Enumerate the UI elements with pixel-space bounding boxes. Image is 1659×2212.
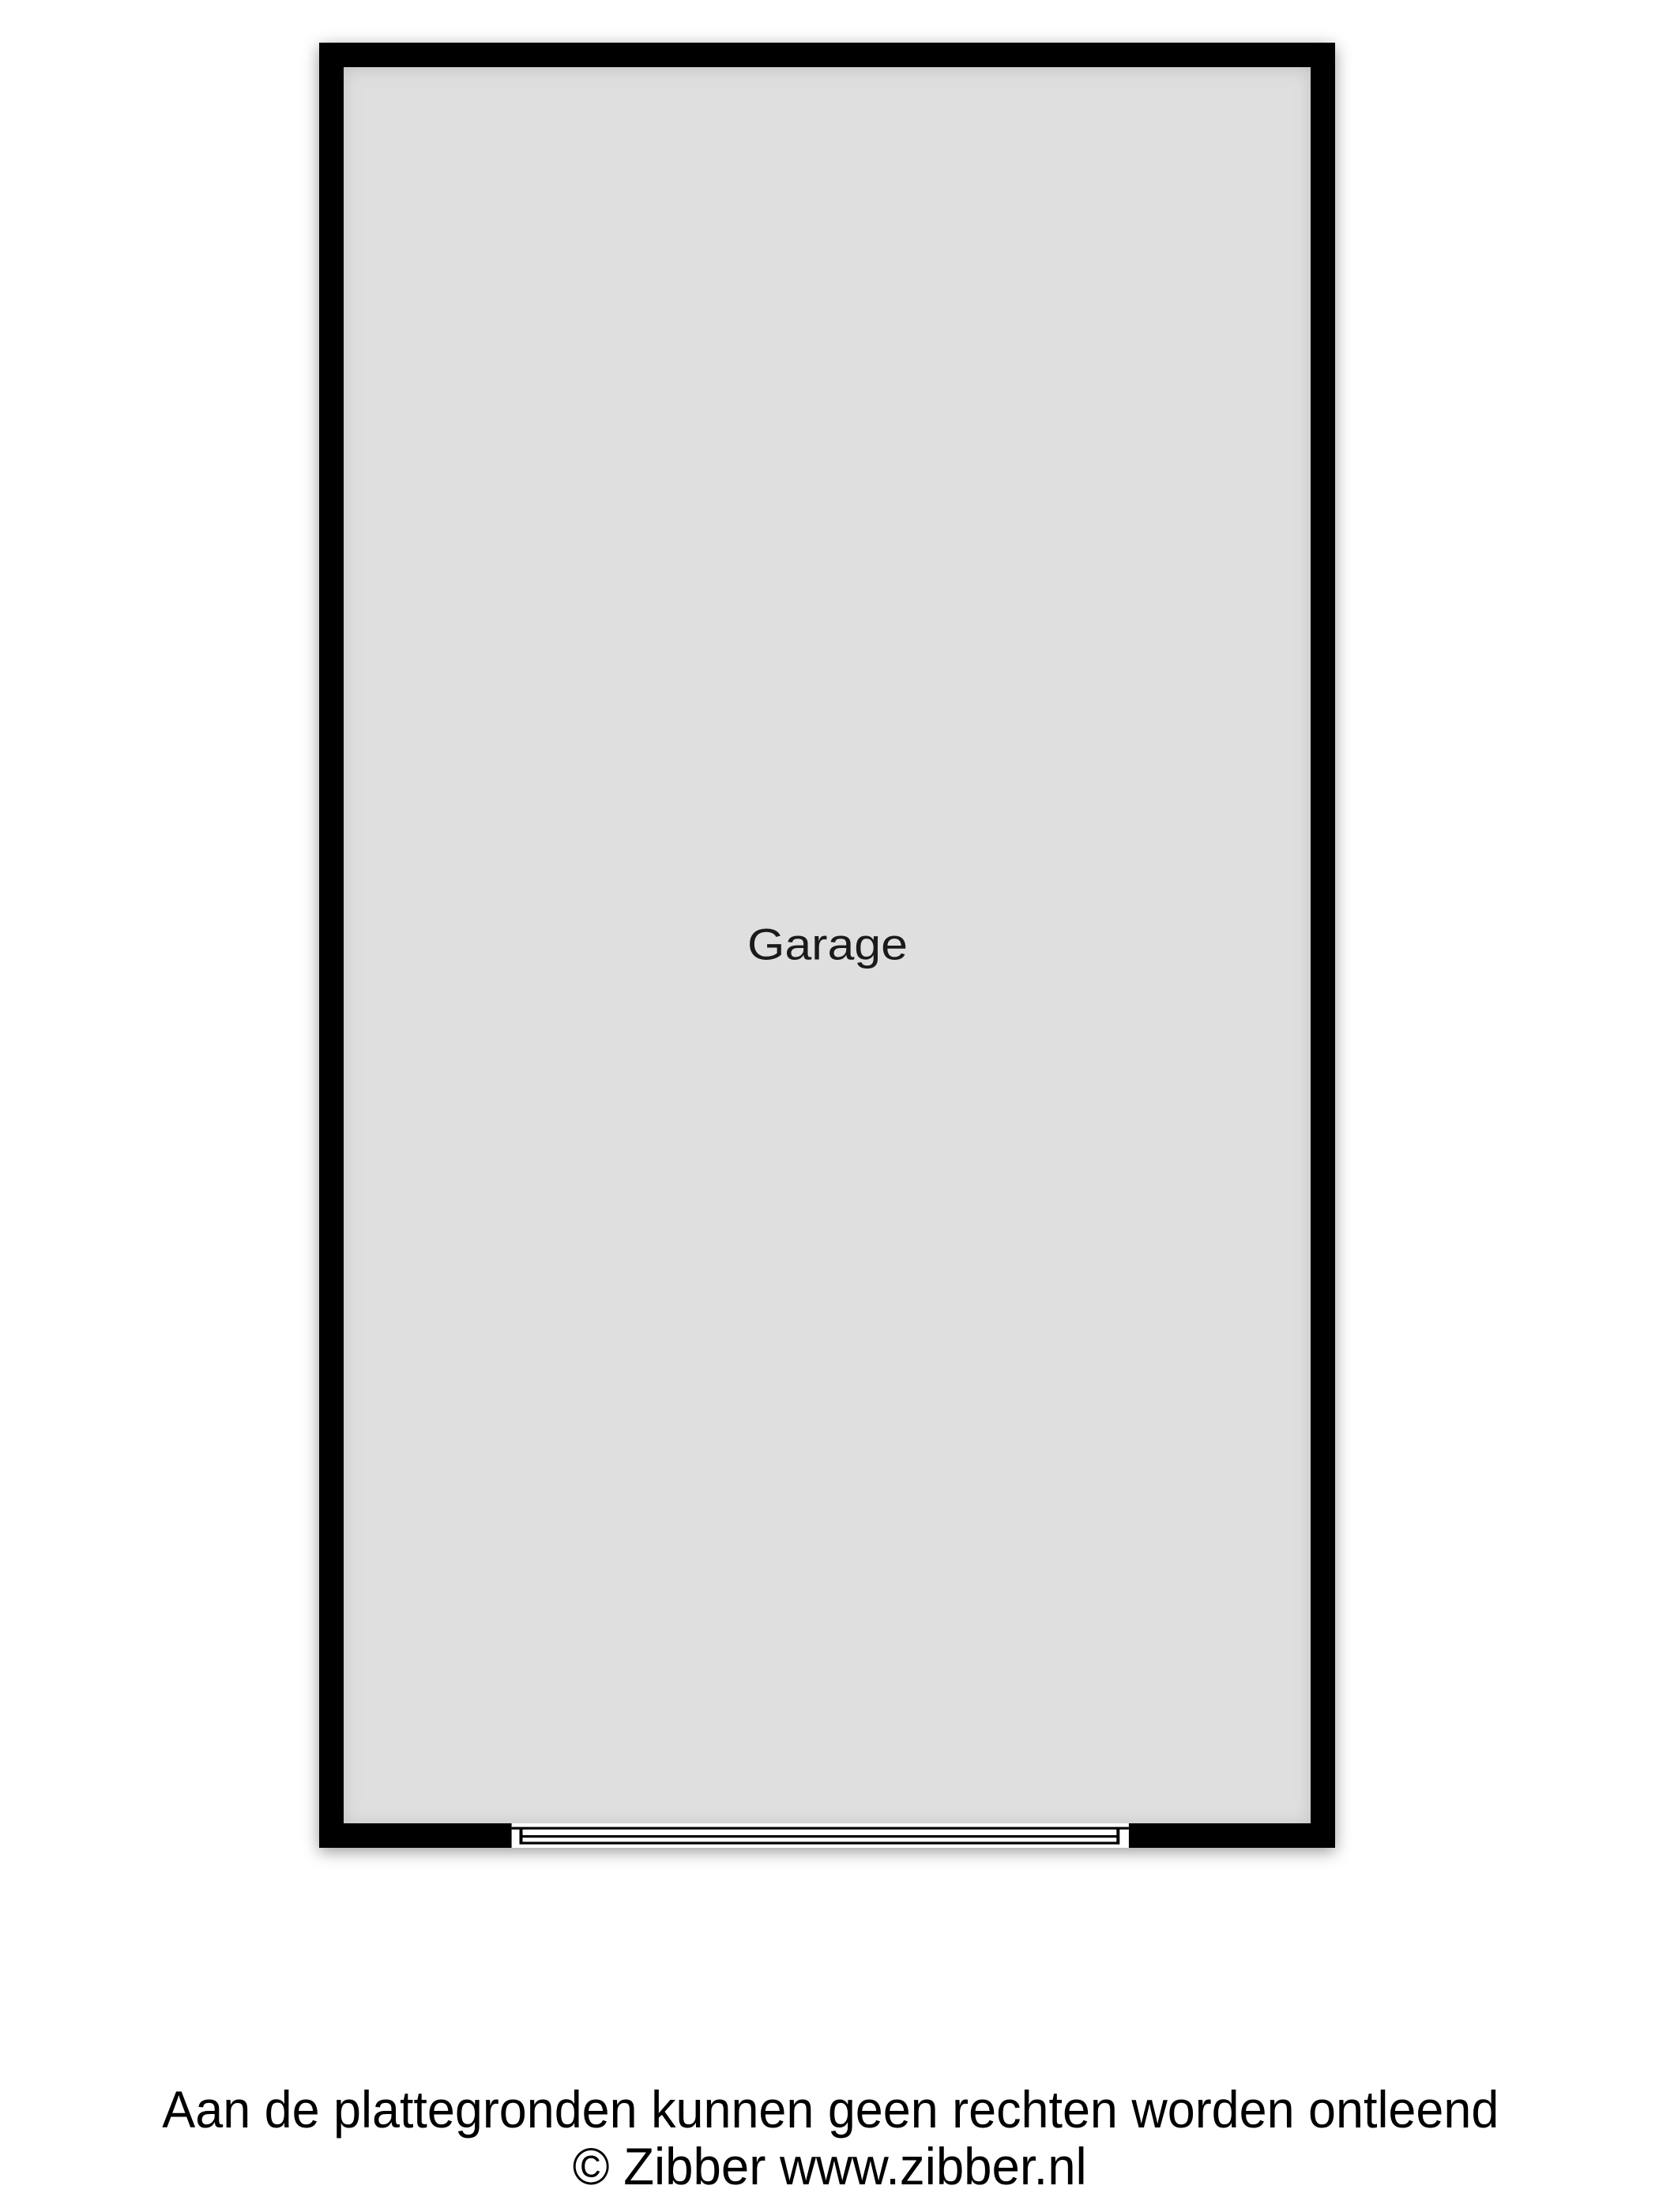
svg-text:Aan de plattegronden kunnen ge: Aan de plattegronden kunnen geen rechten… [162,2080,1499,2139]
svg-text:© Zibber www.zibber.nl: © Zibber www.zibber.nl [573,2137,1087,2195]
svg-text:Garage: Garage [747,920,908,969]
